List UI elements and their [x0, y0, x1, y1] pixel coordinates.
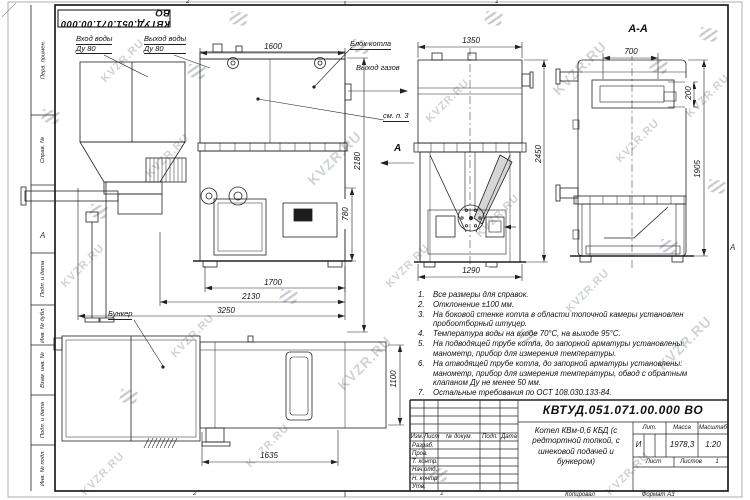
leader-lines [104, 47, 414, 369]
label-gas-outlet: Выход газов [356, 64, 400, 72]
dim-700: 700 [615, 48, 647, 56]
dim-1700: 1700 [255, 279, 291, 287]
zone-marker-left: А [40, 232, 45, 240]
title-scale-header: Масштаб [698, 425, 728, 431]
title-row-t-kontr: Т. контр. [412, 459, 438, 465]
title-scale-value: 1:20 [698, 441, 728, 449]
dim-1600: 1600 [255, 43, 291, 51]
frame-column-inv-podl: Инв. № подл. [31, 445, 55, 491]
label-section-a-a: А-А [618, 24, 658, 35]
label-water-outlet: Выход воды Ду 80 [144, 35, 186, 54]
note-item: 1.Все размеры для справок. [418, 290, 718, 300]
title-row-razrab: Разраб. [412, 443, 434, 449]
view-side [21, 44, 352, 322]
dim-1905: 1905 [694, 152, 702, 186]
title-col-podp: Подп. [480, 434, 500, 440]
zone-marker-bottom-right: 1 [440, 491, 444, 498]
label-water-inlet: Вход воды Ду 80 [76, 35, 112, 54]
zone-marker-bottom-left: 2 [193, 491, 197, 498]
note-item: 3.На боковой стенке котла в области топо… [418, 310, 718, 330]
title-col-data: Дата [500, 434, 518, 440]
dim-2180: 2180 [354, 144, 362, 178]
view-front [414, 48, 533, 274]
title-block-name: Котел КВм-0,6 КБД (с редтортной топкой, … [521, 426, 631, 468]
copied-label: Копировал [545, 492, 615, 498]
title-col-list: Лист [424, 434, 438, 440]
header-stamp: КВТУД.051.071.00.000 ВО [58, 10, 170, 27]
title-sheets-value: 1 [708, 459, 726, 465]
drawing-sheet: KVZR.RU KVZR.RU KVZR.RU KVZR.RU KVZR.RU … [0, 0, 750, 500]
frame-column-inv-dubl: Инв. № дубл. [31, 305, 55, 345]
title-col-docum: № докум. [438, 434, 480, 440]
title-sheet-label: Лист [633, 459, 674, 465]
frame-column-vzam-inv: Взам. инв. № [31, 345, 55, 395]
dim-2450: 2450 [535, 137, 543, 171]
note-item: 4.Температура воды на входе 70°С, на вых… [418, 329, 718, 339]
dim-1635: 1635 [251, 452, 287, 460]
view-section [556, 52, 694, 268]
title-row-nach-otd: Нач.отд. [412, 467, 437, 473]
title-lit-header: Лит. [633, 425, 666, 431]
view-plan [54, 336, 386, 448]
notes-list: 1.Все размеры для справок. 2.Отклонение … [418, 290, 718, 398]
title-row-n-kontr: Н. контр. [412, 476, 439, 482]
frame-column-sprav-no: Справ. № [31, 115, 55, 185]
title-mass-value: 1978,3 [666, 441, 698, 449]
dim-2130: 2130 [233, 293, 269, 301]
label-view-a-arrow: А [394, 144, 401, 154]
label-bunker: Бункер [108, 310, 132, 320]
zone-marker-right: А [730, 244, 735, 252]
title-row-utv: Утв. [412, 484, 426, 490]
note-item: 2.Отклонение ±100 мм. [418, 300, 718, 310]
note-item: 6.На отводящей трубе котла, до запорной … [418, 359, 718, 388]
dim-1100: 1100 [390, 362, 398, 396]
title-row-prov: Пров. [412, 451, 428, 457]
label-boiler-block: Блок котла [350, 40, 391, 50]
dim-200: 200 [685, 78, 693, 108]
dim-780: 780 [342, 199, 350, 229]
title-col-izm: Изм. [410, 434, 424, 440]
frame [55, 5, 728, 491]
dim-1290: 1290 [453, 267, 489, 275]
frame-column-podp-data-1: Подп. и дата [31, 253, 55, 305]
dim-3250: 3250 [208, 307, 244, 315]
frame-column-podp-data-2: Подп. и дата [31, 395, 55, 445]
label-see-note-3: см. п. 3 [383, 112, 409, 122]
frame-column-perv-primen: Перв. примен. [31, 5, 55, 115]
title-mass-header: Масса [666, 425, 698, 431]
format-label: Формат А3 [628, 492, 688, 498]
title-lit-value: И [633, 441, 644, 449]
zone-marker-top-right: 1 [495, 0, 499, 6]
title-sheets-label: Листов [674, 459, 708, 465]
note-item: 5.На подводящей трубе котла, до запорной… [418, 339, 718, 359]
header-stamp-text: КВТУД.051.071.00.000 ВО [58, 8, 170, 30]
dim-1350: 1350 [453, 37, 489, 45]
title-block-doc-number: КВТУД.051.071.00.000 ВО [520, 404, 726, 416]
zone-marker-top-left: 2 [186, 0, 190, 6]
note-item: 7.Остальные требования по ОСТ 108.030.13… [418, 388, 718, 398]
